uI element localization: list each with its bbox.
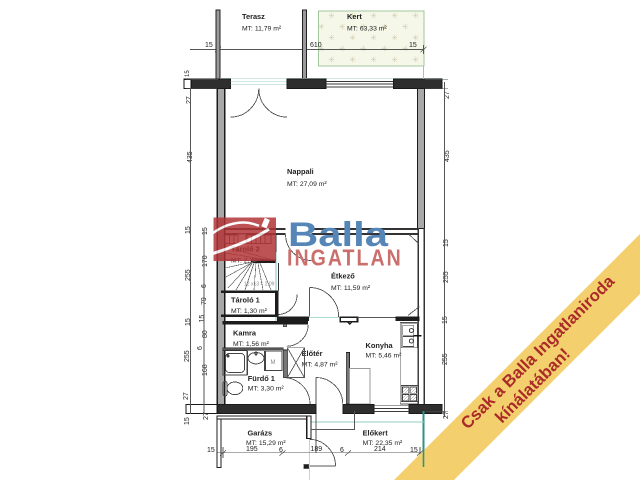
svg-text:15: 15 (185, 318, 192, 326)
svg-text:Garázs: Garázs (248, 429, 273, 438)
svg-text:MT: 11,59 m²: MT: 11,59 m² (331, 285, 371, 292)
svg-text:15: 15 (409, 42, 417, 49)
svg-text:6: 6 (197, 346, 204, 350)
svg-text:Tároló 1: Tároló 1 (231, 296, 260, 305)
svg-text:MT: 27,09 m²: MT: 27,09 m² (287, 181, 327, 188)
svg-text:15: 15 (184, 417, 191, 425)
svg-text:435: 435 (444, 150, 451, 162)
svg-text:MT: 3,30 m²: MT: 3,30 m² (248, 386, 285, 393)
svg-text:168: 168 (202, 364, 209, 376)
svg-text:6: 6 (340, 447, 344, 454)
svg-text:6: 6 (279, 447, 283, 454)
svg-text:Kert: Kert (347, 12, 362, 21)
svg-text:M: M (271, 360, 276, 366)
svg-text:MT: 5,46 m²: MT: 5,46 m² (366, 353, 403, 360)
svg-text:MT: 4,87 m²: MT: 4,87 m² (302, 362, 339, 369)
svg-text:15: 15 (207, 447, 215, 454)
svg-text:610: 610 (310, 42, 322, 49)
svg-text:Terasz: Terasz (242, 12, 265, 21)
svg-text:MT: 1,56 m²: MT: 1,56 m² (233, 341, 270, 348)
svg-text:15: 15 (205, 42, 213, 49)
svg-text:MT: 11,79 m²: MT: 11,79 m² (242, 26, 282, 33)
svg-text:15: 15 (185, 226, 192, 234)
svg-text:27: 27 (186, 96, 193, 104)
svg-text:195: 195 (246, 446, 258, 453)
svg-text:189: 189 (311, 446, 323, 453)
svg-text:MT: 63,33 m²: MT: 63,33 m² (347, 26, 387, 33)
svg-text:Nappali: Nappali (287, 167, 314, 176)
svg-text:27: 27 (444, 91, 451, 99)
svg-text:15: 15 (185, 70, 191, 77)
svg-text:27: 27 (183, 392, 190, 400)
svg-text:214: 214 (374, 446, 386, 453)
svg-text:Fürdő 1: Fürdő 1 (248, 374, 275, 383)
svg-text:255: 255 (443, 271, 450, 283)
svg-text:80: 80 (202, 330, 209, 338)
svg-text:Kamra: Kamra (233, 329, 257, 338)
svg-text:15: 15 (202, 227, 209, 235)
svg-text:12 x13 = 2,09: 12 x13 = 2,09 (244, 282, 275, 288)
svg-text:79: 79 (201, 297, 208, 305)
svg-text:Előkert: Előkert (363, 429, 389, 438)
svg-text:Étkező: Étkező (331, 272, 355, 281)
svg-text:MT: 1,30 m²: MT: 1,30 m² (231, 308, 268, 315)
svg-text:15: 15 (199, 315, 206, 323)
svg-text:15: 15 (443, 239, 450, 247)
svg-text:255: 255 (185, 269, 192, 281)
svg-text:255: 255 (442, 353, 449, 365)
svg-text:27: 27 (443, 411, 450, 419)
svg-text:INGATLAN: INGATLAN (287, 245, 403, 267)
svg-text:255: 255 (184, 350, 191, 362)
svg-text:15: 15 (410, 447, 418, 454)
svg-text:6: 6 (201, 284, 208, 288)
svg-text:170: 170 (202, 255, 209, 267)
svg-text:15: 15 (442, 316, 449, 324)
svg-text:Konyha: Konyha (366, 341, 394, 350)
